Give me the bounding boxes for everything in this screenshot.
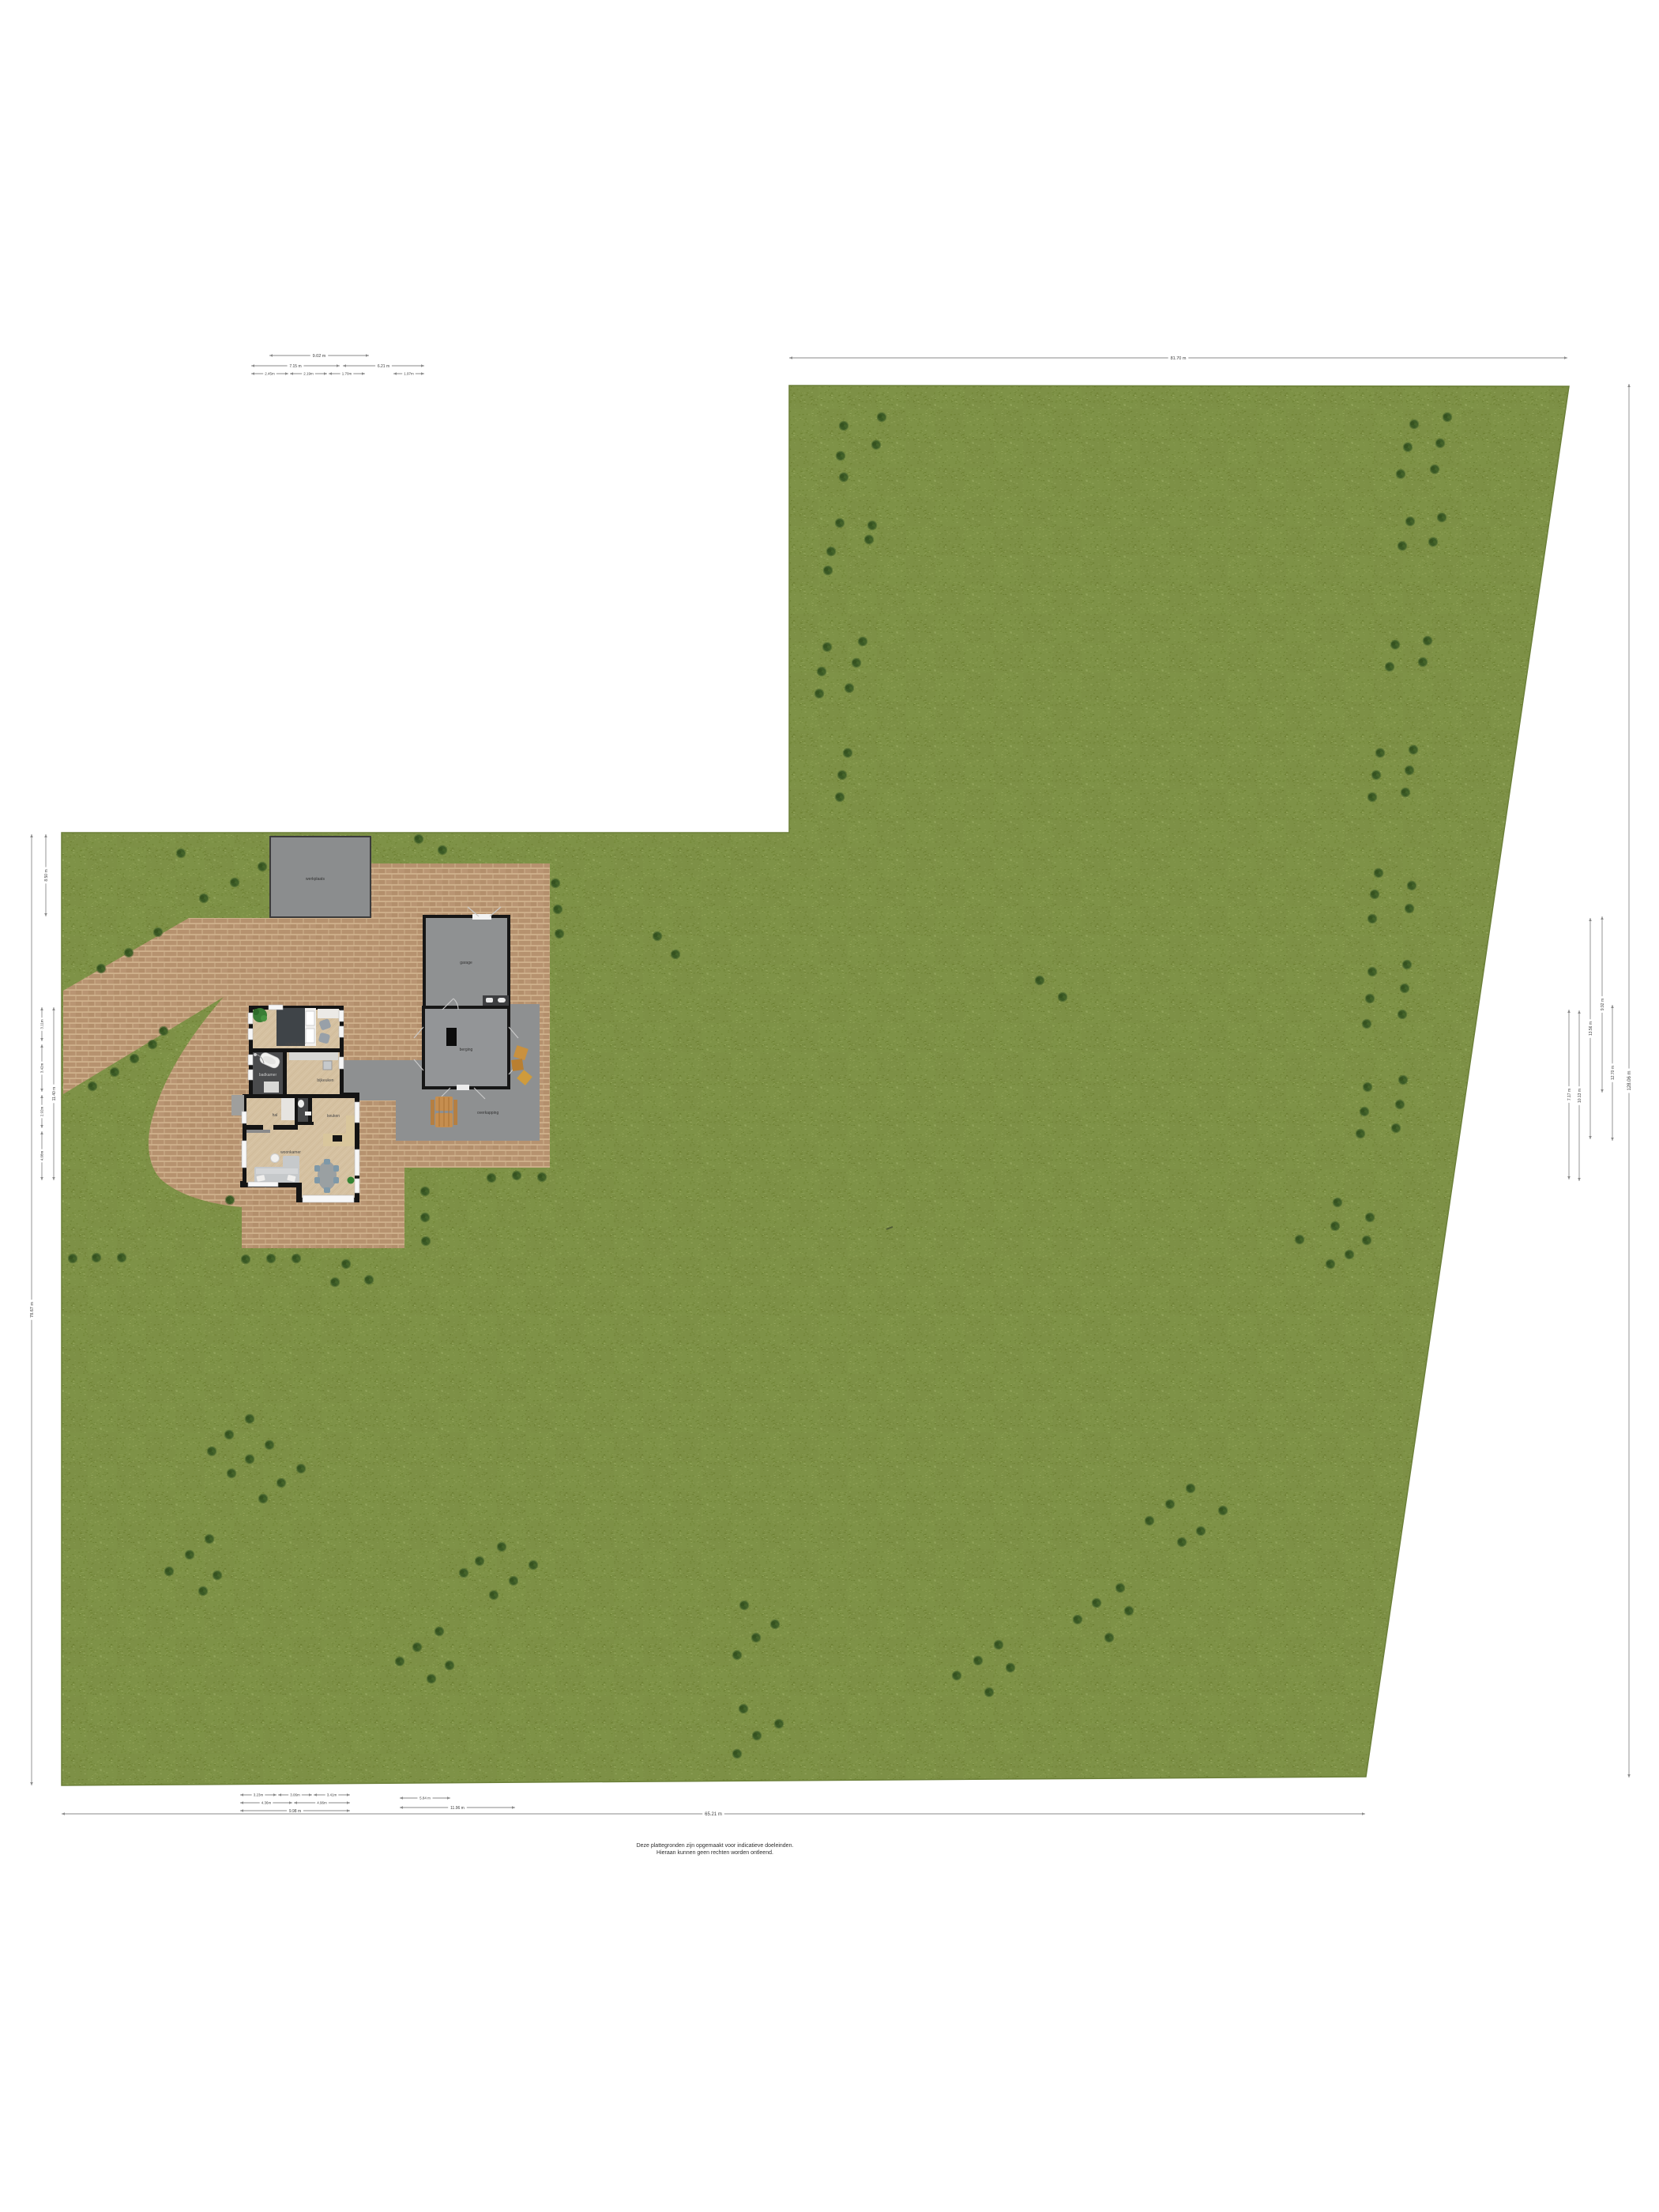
svg-text:11.96 m: 11.96 m [450, 1806, 465, 1811]
svg-text:3.11m: 3.11m [40, 1019, 44, 1029]
svg-text:woonkamer: woonkamer [280, 1150, 301, 1155]
svg-text:10.13 m: 10.13 m [1578, 1089, 1582, 1103]
svg-text:65.21 m: 65.21 m [705, 1812, 722, 1817]
svg-text:hal: hal [273, 1113, 278, 1118]
svg-text:2.19m: 2.19m [303, 372, 314, 376]
svg-text:78.67 m: 78.67 m [30, 1302, 35, 1318]
svg-text:2.45m: 2.45m [265, 372, 275, 376]
svg-text:12.70 m: 12.70 m [1611, 1066, 1616, 1080]
svg-text:garage: garage [460, 961, 472, 965]
svg-text:werkplaats: werkplaats [306, 877, 325, 882]
svg-text:overkapping: overkapping [477, 1111, 498, 1115]
svg-text:4.96m: 4.96m [317, 1801, 327, 1805]
svg-text:9.02 m: 9.02 m [313, 354, 326, 359]
svg-text:keuken: keuken [327, 1114, 340, 1119]
svg-text:6.21 m: 6.21 m [378, 364, 389, 369]
svg-text:Hieraan kunnen geen rechten wo: Hieraan kunnen geen rechten worden ontle… [656, 1850, 773, 1856]
svg-text:9.92 m: 9.92 m [1601, 999, 1605, 1010]
svg-text:13.56 m: 13.56 m [1589, 1021, 1593, 1036]
svg-text:2.92m: 2.92m [40, 1106, 44, 1116]
svg-text:1.97m: 1.97m [404, 372, 414, 376]
svg-text:1.70m: 1.70m [342, 372, 352, 376]
svg-text:Deze plattegronden zijn opgema: Deze plattegronden zijn opgemaakt voor i… [637, 1843, 794, 1849]
svg-text:81.70 m: 81.70 m [1171, 356, 1187, 361]
svg-text:7.17 m: 7.17 m [1567, 1089, 1572, 1100]
svg-text:11.40 m: 11.40 m [52, 1087, 57, 1101]
svg-text:128.06 m: 128.06 m [1627, 1070, 1632, 1090]
svg-text:bijkeuken: bijkeuken [317, 1078, 333, 1083]
svg-text:9.98 m: 9.98 m [289, 1809, 301, 1814]
svg-text:3.41m: 3.41m [327, 1793, 337, 1797]
svg-text:7.15 m: 7.15 m [289, 364, 301, 369]
svg-text:8.50 m: 8.50 m [44, 869, 49, 881]
svg-text:3.23m: 3.23m [254, 1793, 264, 1797]
svg-text:4.36m: 4.36m [261, 1801, 272, 1805]
svg-text:badkamer: badkamer [259, 1073, 277, 1078]
svg-text:5.84 m: 5.84 m [419, 1796, 431, 1800]
svg-text:4.08m: 4.08m [40, 1150, 44, 1161]
svg-text:slaapkamer: slaapkamer [285, 1042, 306, 1047]
svg-text:berging: berging [460, 1048, 473, 1052]
svg-text:3.42m: 3.42m [40, 1063, 44, 1073]
svg-text:3.06m: 3.06m [290, 1793, 300, 1797]
